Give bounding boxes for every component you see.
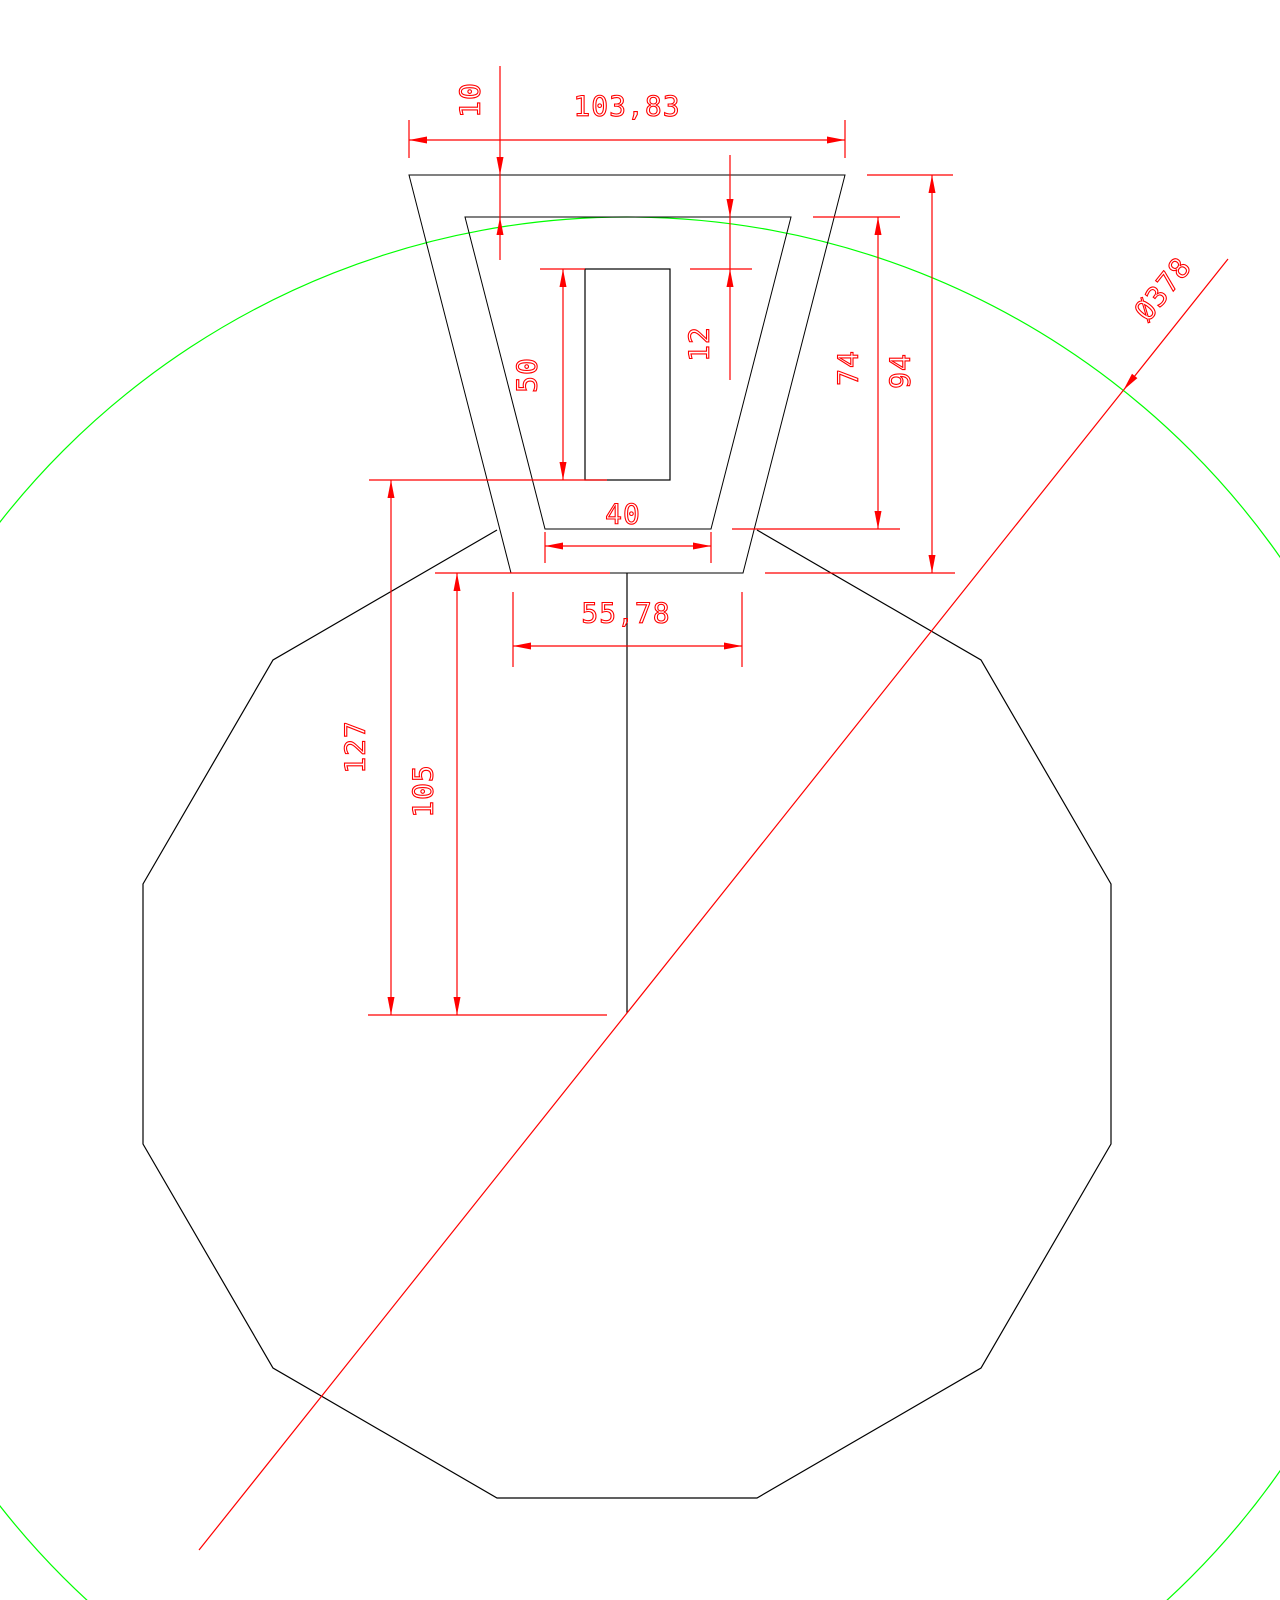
dim-inner-bottom-width-text: 40 <box>605 498 641 531</box>
arrow-left-icon <box>513 643 531 650</box>
dim-slot-to-center: 127 <box>339 480 608 1015</box>
arrow-up-icon <box>560 269 567 287</box>
arrow-up-icon <box>497 217 504 235</box>
dim-slot-height: 50 <box>511 269 586 480</box>
arrow-up-icon <box>875 217 882 235</box>
arrow-right-icon <box>827 137 845 144</box>
arrow-down-icon <box>727 199 734 217</box>
dim-circle-diameter-text: Ø378 <box>1128 251 1198 327</box>
arrow-right-icon <box>724 643 742 650</box>
reference-circle-layer <box>0 217 1280 1600</box>
dim-inner-depth-text: 74 <box>832 350 865 386</box>
dim-outer-bottom-width-text: 55,78 <box>581 597 670 630</box>
dim-bottom-to-center: 105 <box>368 573 610 1015</box>
dim-circle-diameter: Ø378 <box>199 251 1228 1550</box>
dim-slot-offset-text: 12 <box>683 326 716 362</box>
dim-top-wall-text: 10 <box>454 82 487 118</box>
arrow-down-icon <box>497 157 504 175</box>
arrow-right-icon <box>693 543 711 550</box>
arrow-left-icon <box>545 543 563 550</box>
dim-bottom-to-center-text: 105 <box>407 764 440 818</box>
pitch-reference-circle <box>0 217 1280 1600</box>
arrow-down-icon <box>875 511 882 529</box>
geometry-layer <box>143 175 1111 1498</box>
arrow-down-icon <box>560 462 567 480</box>
dim-top-width-text: 103,83 <box>573 90 680 123</box>
dim-outer-depth-text: 94 <box>884 353 917 389</box>
dim-slot-to-center-text: 127 <box>339 720 372 774</box>
dim-inner-bottom-width: 40 <box>545 498 711 564</box>
dim-slot-offset: 12 <box>683 155 753 380</box>
dim-slot-height-text: 50 <box>511 357 544 393</box>
dim-inner-depth: 74 <box>732 217 900 529</box>
slot-rectangle <box>585 269 670 480</box>
arrow-down-icon <box>454 997 461 1015</box>
arrow-left-icon <box>409 137 427 144</box>
arrow-up-icon <box>929 175 936 193</box>
arrow-up-icon <box>388 480 395 498</box>
dimension-layer: 103,83 10 12 50 <box>199 66 1228 1550</box>
arrow-down-icon <box>388 997 395 1015</box>
arrow-up-icon <box>454 573 461 591</box>
arrow-down-icon <box>929 555 936 573</box>
cad-drawing-canvas: 103,83 10 12 50 <box>0 0 1280 1600</box>
diameter-line <box>199 259 1228 1550</box>
arrow-up-icon <box>727 269 734 287</box>
technical-drawing: 103,83 10 12 50 <box>0 0 1280 1600</box>
